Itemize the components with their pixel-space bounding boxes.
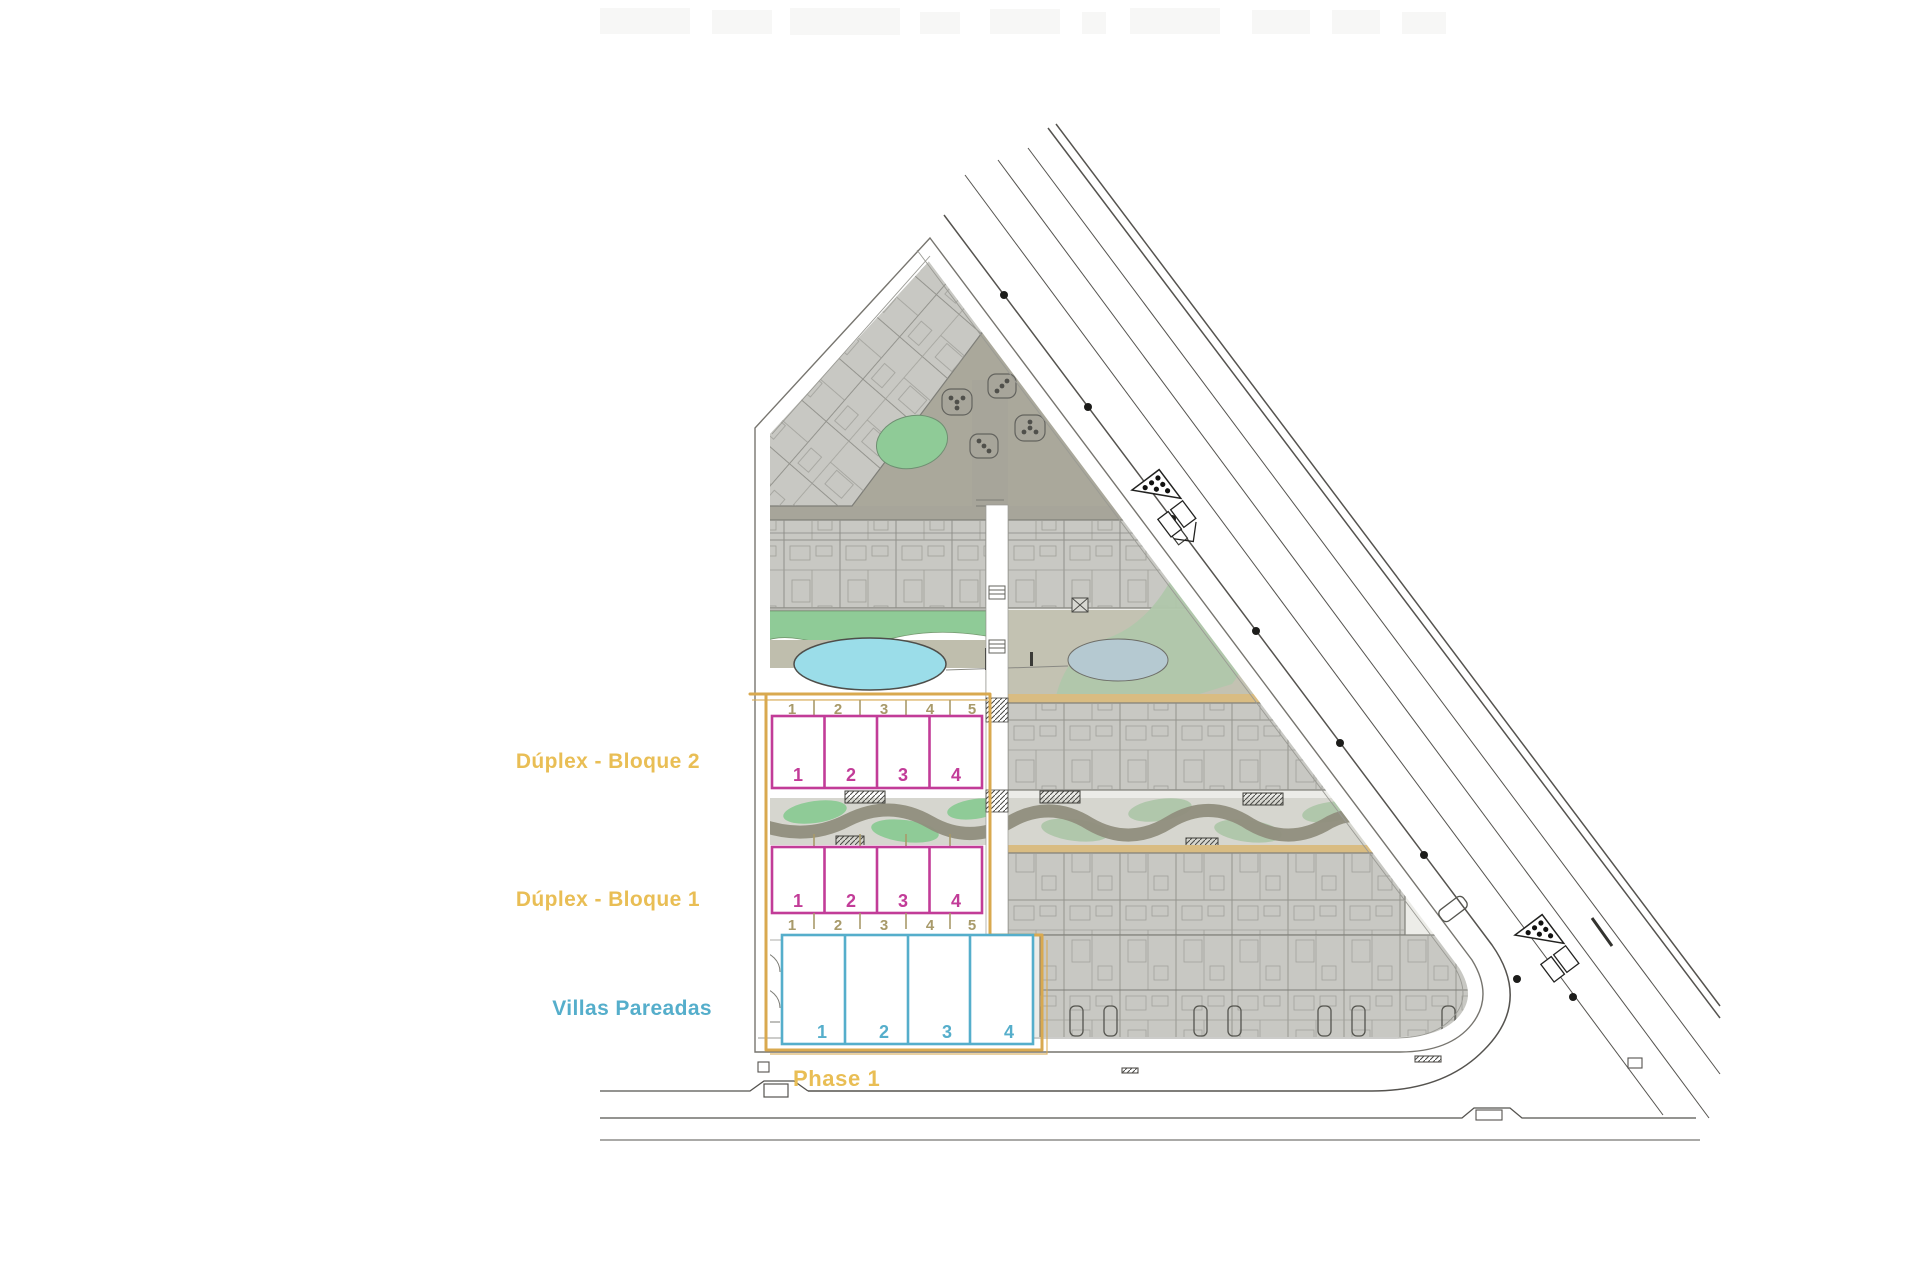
plot-number: 4 <box>926 917 935 934</box>
label-bloque1: Dúplex - Bloque 1 <box>516 888 700 911</box>
bottom-road <box>600 1056 1700 1140</box>
label-bloque2: Dúplex - Bloque 2 <box>516 750 700 773</box>
pool-phase1 <box>794 638 946 690</box>
plot-number: 5 <box>968 917 976 934</box>
site-blocks <box>753 238 1495 1054</box>
plot-number: 3 <box>880 917 888 934</box>
unit-number: 1 <box>793 765 803 785</box>
plot-number: 2 <box>834 917 842 934</box>
unit-number: 1 <box>793 891 803 911</box>
unit-number: 4 <box>1004 1022 1014 1042</box>
unit-number: 3 <box>942 1022 952 1042</box>
unit-number: 1 <box>817 1022 827 1042</box>
townhouse-row-c <box>1040 935 1475 1050</box>
utility-box-icon <box>1072 598 1088 612</box>
plot-number: 1 <box>788 917 796 934</box>
site-plan-svg: 1 2 3 4 5 1 2 3 4 <box>0 0 1920 1280</box>
walkway-garden <box>755 791 1395 848</box>
townhouse-row-b <box>1008 845 1405 935</box>
label-phase1: Phase 1 <box>793 1066 880 1091</box>
unit-number: 2 <box>846 891 856 911</box>
unit-number: 2 <box>846 765 856 785</box>
unit-number: 4 <box>951 765 961 785</box>
pool-garden-phase1 <box>762 610 986 700</box>
unit-number: 2 <box>879 1022 889 1042</box>
road-tick <box>1592 918 1612 946</box>
label-villas: Villas Pareadas <box>552 997 712 1020</box>
unit-number: 3 <box>898 891 908 911</box>
villas-block: 1 2 3 4 <box>782 935 1033 1044</box>
site-plan-page: 1 2 3 4 5 1 2 3 4 <box>0 0 1920 1280</box>
unit-number: 3 <box>898 765 908 785</box>
pond-phase2 <box>1068 639 1168 681</box>
top-edge-artifacts <box>600 8 1446 35</box>
unit-number: 4 <box>951 891 961 911</box>
crossing-marker-lower <box>1515 915 1579 984</box>
